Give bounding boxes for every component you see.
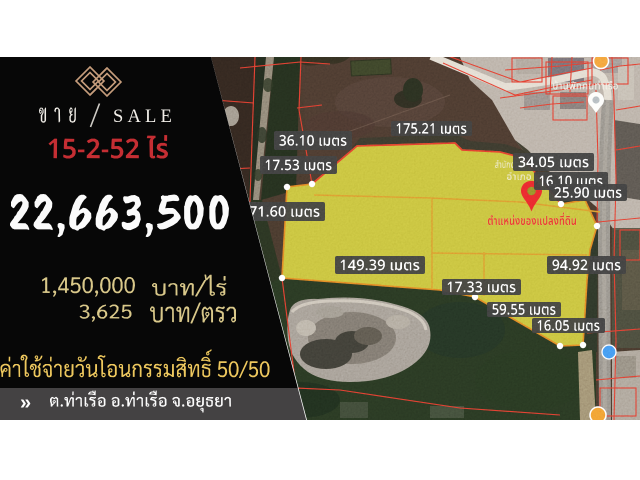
svg-text:»: » bbox=[20, 392, 31, 414]
svg-text:SALE: SALE bbox=[113, 107, 176, 127]
